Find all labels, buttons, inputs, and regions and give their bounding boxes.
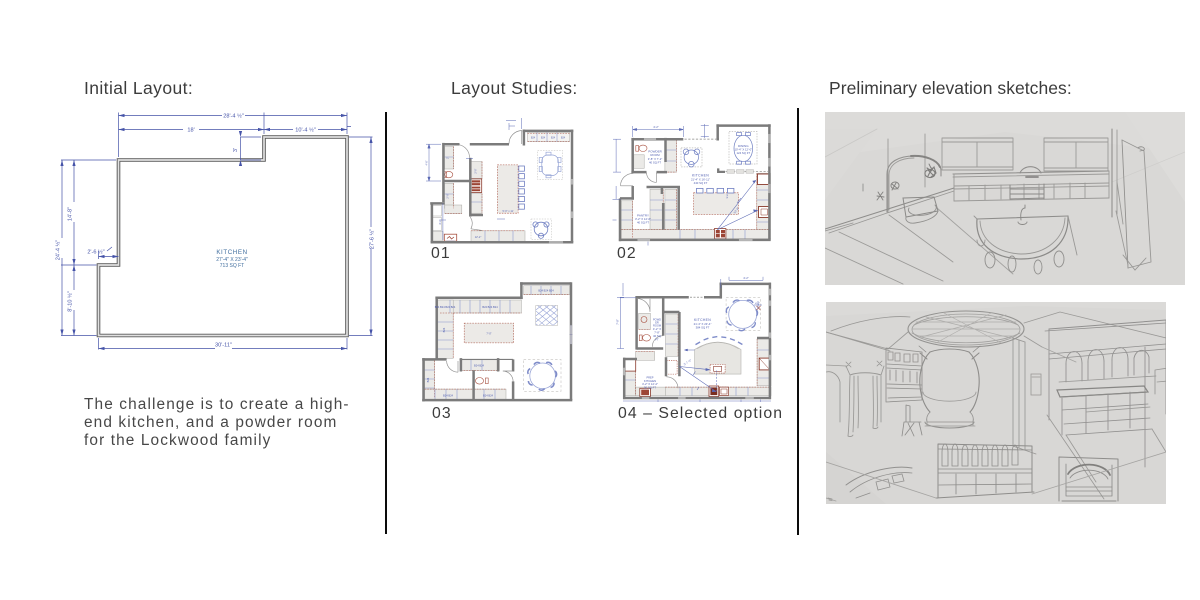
svg-text:40 SQ FT: 40 SQ FT — [649, 160, 661, 164]
svg-text:B24: B24 — [442, 327, 446, 332]
svg-text:4'-6": 4'-6" — [426, 160, 429, 165]
svg-text:27'-4" X 23'-4": 27'-4" X 23'-4" — [216, 257, 248, 263]
svg-text:3': 3' — [233, 148, 239, 152]
svg-text:28'-4 ½": 28'-4 ½" — [223, 113, 243, 120]
svg-text:3'-7 ½": 3'-7 ½" — [683, 358, 692, 366]
svg-text:24'-4 ½": 24'-4 ½" — [55, 240, 62, 260]
svg-text:B24 B24 B24: B24 B24 B24 — [482, 305, 498, 309]
svg-text:18': 18' — [187, 128, 194, 134]
svg-text:2'-0": 2'-0" — [446, 193, 450, 198]
svg-text:B24: B24 — [426, 377, 430, 382]
svg-text:50 SQ FT: 50 SQ FT — [644, 386, 656, 390]
svg-text:14'-8": 14'-8" — [68, 207, 74, 221]
svg-text:2'-6 ½": 2'-6 ½" — [87, 249, 104, 256]
svg-text:B24: B24 — [551, 137, 556, 140]
svg-text:B24: B24 — [561, 137, 566, 140]
svg-text:124 SQ FT: 124 SQ FT — [736, 151, 750, 155]
svg-text:B24 B24: B24 B24 — [483, 394, 494, 398]
svg-text:440 SQ FT: 440 SQ FT — [694, 181, 708, 185]
svg-text:B24 B24 B24: B24 B24 B24 — [538, 289, 554, 293]
svg-text:30'-11": 30'-11" — [215, 343, 232, 349]
svg-text:9'-6": 9'-6" — [726, 193, 729, 198]
svg-text:5'-0" x 11': 5'-0" x 11' — [502, 209, 514, 213]
svg-text:B24 B24: B24 B24 — [474, 364, 485, 368]
svg-text:10'-4 ½": 10'-4 ½" — [295, 127, 315, 134]
svg-text:B24 B24: B24 B24 — [443, 394, 454, 398]
svg-text:KITCHEN: KITCHEN — [216, 249, 247, 256]
svg-text:8'-10 ½": 8'-10 ½" — [67, 291, 74, 311]
svg-text:4'-2": 4'-2" — [743, 276, 749, 280]
svg-text:FT: FT — [655, 338, 659, 342]
svg-text:7'-0": 7'-0" — [486, 332, 491, 336]
svg-text:4'-2": 4'-2" — [653, 125, 659, 129]
svg-text:2'-0": 2'-0" — [474, 168, 478, 173]
svg-text:40 SQ FT: 40 SQ FT — [637, 221, 649, 225]
svg-text:713 SQ FT: 713 SQ FT — [220, 263, 244, 269]
svg-text:27'-6 ½": 27'-6 ½" — [369, 229, 376, 249]
svg-text:7'-8": 7'-8" — [616, 319, 620, 325]
svg-text:384 SQ FT: 384 SQ FT — [696, 326, 710, 330]
svg-text:12'-2": 12'-2" — [475, 235, 482, 239]
svg-text:4'-1": 4'-1" — [755, 303, 760, 306]
svg-text:B24: B24 — [541, 137, 546, 140]
svg-text:8'-2": 8'-2" — [439, 219, 442, 224]
svg-text:B24: B24 — [531, 137, 536, 140]
svg-text:B24 B24 B24 B24: B24 B24 B24 B24 — [435, 305, 456, 309]
